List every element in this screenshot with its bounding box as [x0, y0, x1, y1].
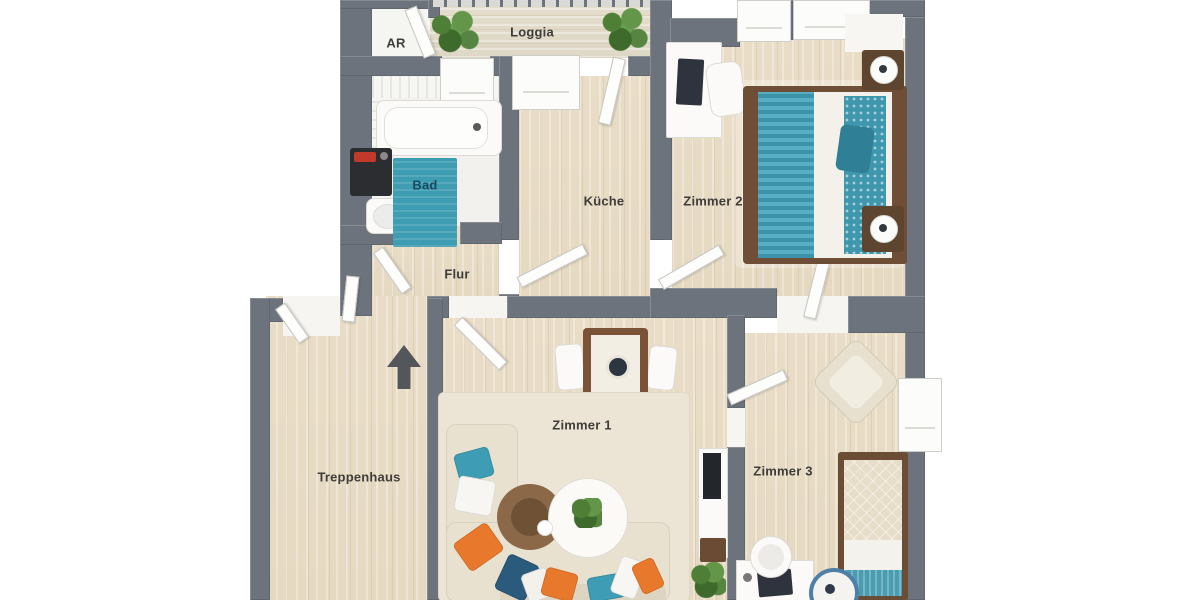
wall-spine-mid — [507, 296, 668, 318]
coffee-cup — [537, 520, 553, 536]
zimmer2-desk-chair — [704, 60, 747, 118]
wall-top-ar — [340, 0, 432, 9]
table-bowl — [606, 355, 630, 379]
bathtub — [376, 100, 502, 156]
sideboard-box — [700, 538, 726, 562]
zimmer1-plant — [690, 562, 726, 598]
room-treppenhaus-floor — [266, 296, 427, 600]
room-label-bad: Bad — [412, 178, 437, 193]
washing-machine-knob — [380, 152, 388, 160]
zimmer2-window-1 — [737, 0, 791, 42]
room-label-ar: AR — [386, 36, 405, 51]
bath-mat — [393, 158, 457, 247]
kueche-loggia-window — [512, 55, 580, 110]
nightstand-bottom — [862, 206, 904, 252]
laptop — [676, 58, 704, 105]
room-label-zimmer2: Zimmer 2 — [683, 194, 742, 209]
desk-item — [743, 573, 752, 582]
room-label-flur: Flur — [444, 267, 469, 282]
washing-machine-basket — [354, 152, 376, 162]
armchair-cushion — [826, 352, 885, 411]
zimmer3-window — [898, 378, 942, 452]
nightstand-top — [862, 50, 904, 90]
side-table-plant — [572, 498, 602, 528]
chair-seat — [758, 544, 784, 570]
loggia-plant-right — [596, 4, 650, 56]
lumbar-pillow — [835, 124, 875, 174]
room-label-loggia: Loggia — [510, 25, 554, 40]
tv — [703, 453, 721, 499]
washing-machine — [350, 148, 392, 196]
loggia-plant-left — [424, 8, 482, 56]
room-label-kueche: Küche — [584, 194, 625, 209]
wall-under-loggia-left — [340, 56, 442, 76]
single-bed-quilt — [844, 460, 902, 542]
sofa-pillow-white-1 — [453, 475, 497, 517]
zimmer3-desk-chair — [750, 536, 792, 578]
bathtub-faucet — [473, 123, 481, 131]
dining-chair-right — [646, 345, 678, 392]
floorplan-canvas: AR Loggia Bad Küche Zimmer 2 Flur Treppe… — [0, 0, 1200, 600]
room-label-zimmer1: Zimmer 1 — [552, 418, 611, 433]
wall-spine-zimmer2 — [650, 288, 777, 318]
room-label-zimmer3: Zimmer 3 — [753, 464, 812, 479]
zimmer2-window-sill — [845, 14, 903, 52]
room-label-treppenhaus: Treppenhaus — [317, 470, 400, 485]
wall-treppenhaus-left — [250, 298, 270, 600]
wall-bad-bottom-right — [460, 222, 502, 244]
lamp-center — [879, 65, 887, 73]
round-rug-center — [825, 584, 835, 594]
duvet-teal-striped — [758, 92, 814, 258]
zimmer1-doorway — [449, 296, 507, 318]
dining-chair-left — [554, 343, 586, 391]
wall-spine-zimmer3 — [848, 296, 925, 333]
dining-table — [583, 328, 648, 400]
zimmer1-zimmer3-doorway — [727, 408, 745, 447]
single-bed-sheet — [844, 540, 902, 572]
lamp-center — [879, 224, 887, 232]
